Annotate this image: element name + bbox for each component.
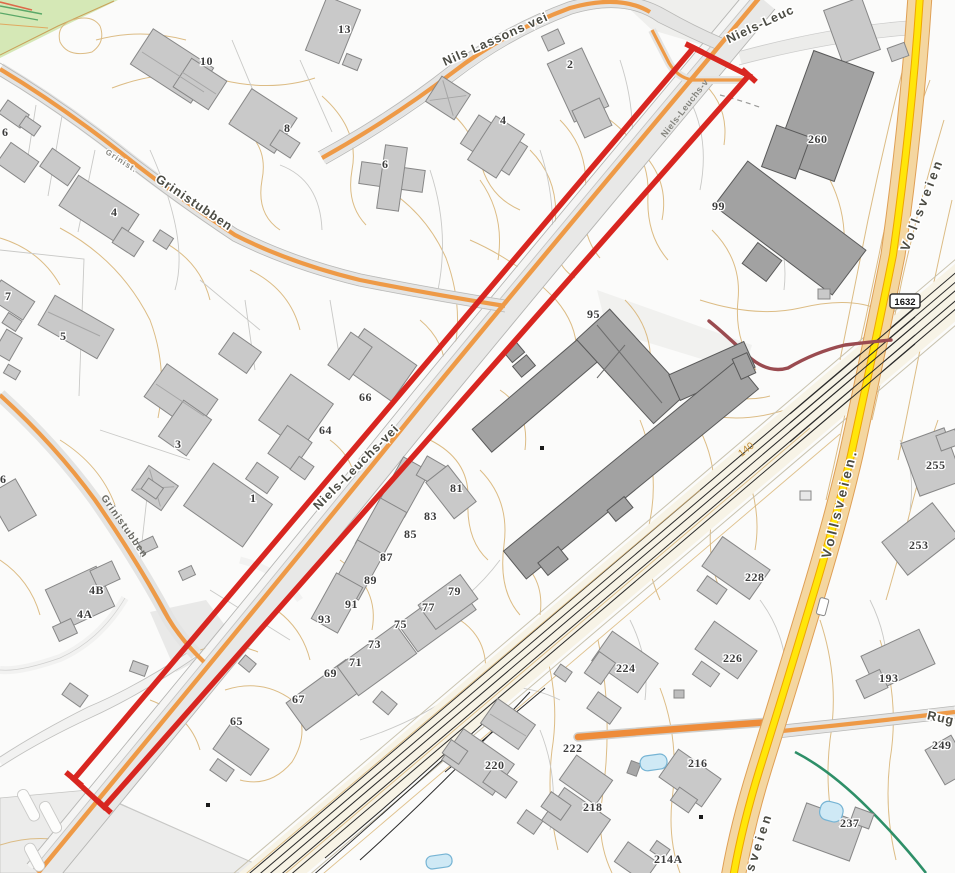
svg-text:71: 71 [349, 655, 362, 669]
svg-text:66: 66 [359, 390, 372, 404]
svg-text:6: 6 [382, 157, 389, 171]
svg-text:79: 79 [448, 584, 461, 598]
svg-text:4: 4 [500, 113, 507, 127]
svg-text:4A: 4A [77, 607, 93, 621]
svg-text:85: 85 [404, 527, 417, 541]
svg-text:3: 3 [175, 437, 182, 451]
svg-text:249: 249 [932, 738, 952, 752]
svg-text:69: 69 [324, 666, 337, 680]
svg-text:91: 91 [345, 597, 358, 611]
svg-text:1: 1 [250, 491, 257, 505]
svg-text:218: 218 [583, 800, 603, 814]
svg-text:99: 99 [712, 199, 725, 213]
svg-text:10: 10 [200, 54, 213, 68]
svg-text:237: 237 [840, 816, 860, 830]
svg-text:226: 226 [723, 651, 743, 665]
svg-text:220: 220 [485, 758, 505, 772]
svg-text:67: 67 [292, 692, 305, 706]
svg-text:8: 8 [284, 121, 291, 135]
svg-text:224: 224 [616, 661, 636, 675]
svg-text:93: 93 [318, 612, 331, 626]
svg-text:4: 4 [111, 205, 118, 219]
svg-text:81: 81 [450, 481, 463, 495]
svg-text:73: 73 [368, 637, 381, 651]
svg-text:6: 6 [0, 472, 7, 486]
svg-text:65: 65 [230, 714, 243, 728]
svg-text:253: 253 [909, 538, 929, 552]
svg-text:1632: 1632 [894, 297, 915, 308]
svg-text:64: 64 [319, 423, 332, 437]
svg-text:214A: 214A [654, 852, 683, 866]
svg-text:5: 5 [60, 329, 67, 343]
svg-text:83: 83 [424, 509, 437, 523]
svg-text:89: 89 [364, 573, 377, 587]
svg-text:216: 216 [688, 756, 708, 770]
svg-text:228: 228 [745, 570, 765, 584]
svg-text:75: 75 [394, 617, 407, 631]
svg-text:2: 2 [567, 57, 574, 71]
svg-text:193: 193 [879, 671, 899, 685]
svg-text:255: 255 [926, 458, 946, 472]
svg-text:13: 13 [338, 22, 351, 36]
svg-text:222: 222 [563, 741, 583, 755]
svg-text:4B: 4B [89, 583, 104, 597]
svg-text:87: 87 [380, 550, 393, 564]
svg-text:95: 95 [587, 307, 600, 321]
svg-text:260: 260 [808, 132, 828, 146]
svg-text:77: 77 [422, 600, 435, 614]
svg-text:6: 6 [2, 125, 9, 139]
svg-text:7: 7 [5, 289, 12, 303]
